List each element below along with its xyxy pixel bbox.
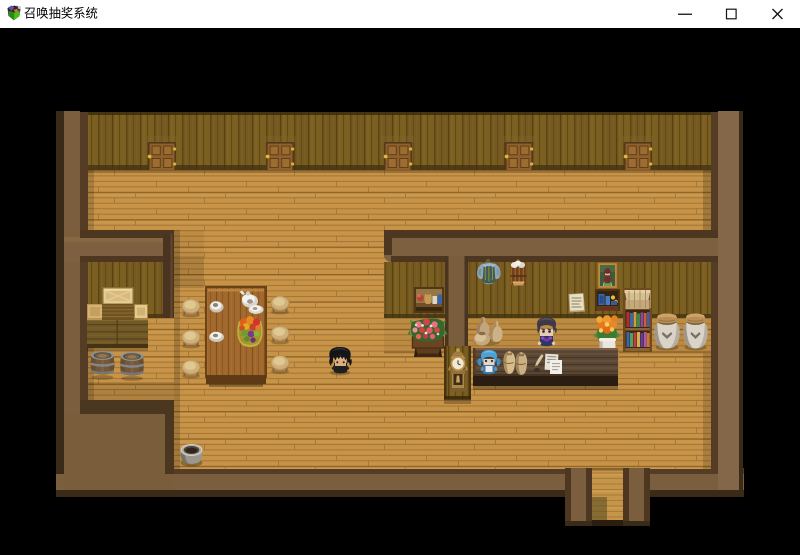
svg-text:召唤抽奖系统: 召唤抽奖系统: [24, 7, 98, 21]
